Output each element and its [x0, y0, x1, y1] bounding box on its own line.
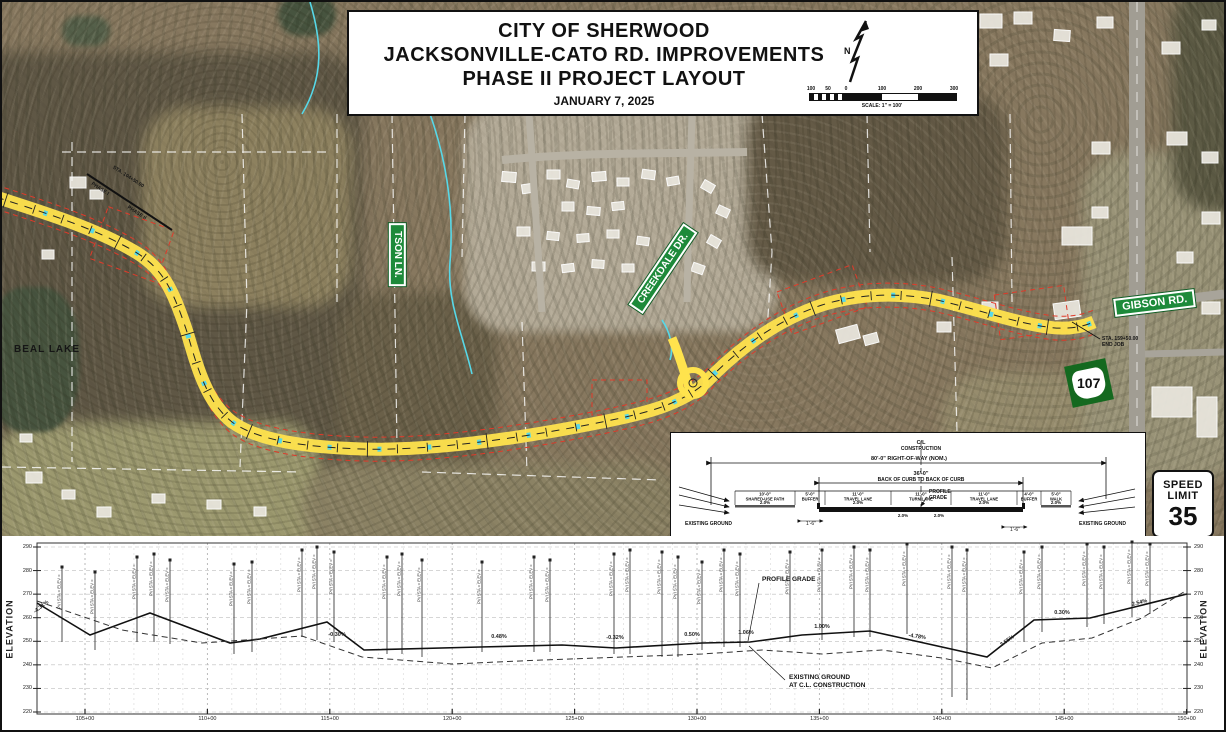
svg-text:N: N — [844, 46, 851, 56]
svg-text:BUFFER: BUFFER — [1021, 497, 1038, 502]
svg-text:PVI STA = ELEV =: PVI STA = ELEV = — [417, 567, 422, 602]
svg-text:PVI STA = ELEV =: PVI STA = ELEV = — [90, 579, 95, 614]
tson-ln-sign: TSON LN. — [389, 223, 406, 286]
existing-ground-line — [37, 590, 1187, 668]
svg-text:PVI STA = ELEV =: PVI STA = ELEV = — [962, 557, 967, 592]
elevation-profile-panel: PVI STA = ELEV =PVI STA = ELEV =PVI STA … — [2, 536, 1224, 730]
speed-value: 35 — [1169, 503, 1198, 529]
svg-text:1'-6": 1'-6" — [1010, 527, 1020, 533]
svg-text:PVI STA = ELEV =: PVI STA = ELEV = — [947, 554, 952, 589]
plan-sheet: BEAL LAKE PHASE I STA. 104+50.00 PHASE I… — [0, 0, 1226, 732]
svg-text:2.0%: 2.0% — [1051, 500, 1061, 505]
svg-text:PVI STA = ELEV =: PVI STA = ELEV = — [329, 559, 334, 594]
subdivision-road — [502, 152, 747, 160]
profile-grade-line — [37, 594, 1187, 657]
svg-text:PVI STA = ELEV =: PVI STA = ELEV = — [697, 569, 702, 604]
svg-text:PVI STA = ELEV =: PVI STA = ELEV = — [673, 564, 678, 599]
svg-text:1.00%: 1.00% — [814, 624, 830, 630]
svg-text:2.0%: 2.0% — [898, 513, 908, 518]
subdivision-road — [529, 114, 542, 312]
svg-text:PVI STA = ELEV =: PVI STA = ELEV = — [229, 571, 234, 606]
scale-label: SCALE: 1" = 100' — [809, 103, 955, 109]
svg-text:PVI STA = ELEV =: PVI STA = ELEV = — [397, 561, 402, 596]
north-arrow-icon: N — [836, 20, 882, 84]
svg-text:-4.31%: -4.31% — [33, 599, 51, 615]
svg-text:-0.32%: -0.32% — [606, 635, 624, 641]
svg-text:80'-0" RIGHT-OF-WAY (NOM.): 80'-0" RIGHT-OF-WAY (NOM.) — [871, 456, 947, 462]
shield-number: 107 — [1077, 375, 1100, 391]
side-road — [1145, 352, 1224, 354]
svg-text:0.50%: 0.50% — [684, 632, 700, 638]
svg-text:GRADE: GRADE — [929, 495, 948, 501]
station-ticks — [3, 192, 1078, 457]
svg-text:PVI STA = ELEV =: PVI STA = ELEV = — [297, 557, 302, 592]
svg-text:0.30%: 0.30% — [1054, 610, 1070, 616]
svg-text:PVI STA = ELEV =: PVI STA = ELEV = — [902, 551, 907, 586]
svg-text:PVI STA = ELEV =: PVI STA = ELEV = — [529, 564, 534, 599]
svg-text:CONSTRUCTION: CONSTRUCTION — [901, 446, 942, 452]
svg-text:PVI STA = ELEV =: PVI STA = ELEV = — [57, 574, 62, 609]
svg-text:PVI STA = ELEV =: PVI STA = ELEV = — [849, 554, 854, 589]
svg-text:PVI STA = ELEV =: PVI STA = ELEV = — [719, 557, 724, 592]
svg-text:BUFFER: BUFFER — [802, 497, 819, 502]
svg-text:EXISTING GROUND: EXISTING GROUND — [1079, 521, 1126, 527]
svg-text:PVI STA = ELEV =: PVI STA = ELEV = — [609, 561, 614, 596]
svg-text:PVI STA = ELEV =: PVI STA = ELEV = — [132, 564, 137, 599]
svg-text:1'-6": 1'-6" — [806, 521, 816, 527]
svg-text:PVI STA = ELEV =: PVI STA = ELEV = — [312, 554, 317, 589]
scale-bar: 100 50 0 100 200 300 SCALE: 1" = 100' — [809, 86, 959, 112]
profile-grade-label: PROFILE GRADE — [762, 576, 815, 583]
svg-text:2.0%: 2.0% — [760, 500, 770, 505]
typical-section-panel: C/L CONSTRUCTION 80'-0" RIGHT-OF-WAY (NO… — [670, 432, 1146, 542]
title-date: JANUARY 7, 2025 — [369, 94, 839, 108]
title-line2: JACKSONVILLE-CATO RD. IMPROVEMENTS — [369, 43, 839, 67]
svg-text:-0.30%: -0.30% — [328, 632, 346, 638]
existing-ground-label: EXISTING GROUND AT C.L. CONSTRUCTION — [789, 674, 865, 690]
speed-word: SPEED — [1163, 480, 1203, 491]
subdivision-road — [687, 114, 692, 302]
svg-text:PVI STA = ELEV =: PVI STA = ELEV = — [477, 569, 482, 604]
svg-text:0.48%: 0.48% — [491, 634, 507, 640]
svg-text:PVI STA = ELEV =: PVI STA = ELEV = — [1127, 549, 1132, 584]
typical-section-drawing: C/L CONSTRUCTION 80'-0" RIGHT-OF-WAY (NO… — [671, 433, 1143, 539]
svg-text:PVI STA = ELEV =: PVI STA = ELEV = — [625, 557, 630, 592]
title-line1: CITY OF SHERWOOD — [369, 19, 839, 43]
svg-text:PVI STA = ELEV =: PVI STA = ELEV = — [247, 569, 252, 604]
svg-text:PVI STA = ELEV =: PVI STA = ELEV = — [657, 559, 662, 594]
speed-limit-sign: SPEED LIMIT 35 — [1152, 470, 1214, 538]
elevation-axis-right: ELEVATION — [1199, 599, 1209, 658]
svg-text:1.06%: 1.06% — [738, 630, 754, 636]
svg-text:PVI STA = ELEV =: PVI STA = ELEV = — [165, 567, 170, 602]
end-job-label: STA. 159+50.00END JOB — [1102, 336, 1138, 348]
title-text: CITY OF SHERWOOD JACKSONVILLE-CATO RD. I… — [369, 19, 839, 108]
svg-text:PVI STA = ELEV =: PVI STA = ELEV = — [149, 561, 154, 596]
scale-bar-graphic — [809, 93, 957, 101]
limit-word: LIMIT — [1167, 491, 1198, 502]
title-line3: PHASE II PROJECT LAYOUT — [369, 67, 839, 91]
svg-text:PVI STA = ELEV =: PVI STA = ELEV = — [735, 561, 740, 596]
svg-text:BACK OF CURB TO BACK OF CURB: BACK OF CURB TO BACK OF CURB — [878, 477, 965, 483]
svg-text:PVI STA = ELEV =: PVI STA = ELEV = — [382, 564, 387, 599]
svg-text:PVI STA = ELEV =: PVI STA = ELEV = — [817, 557, 822, 592]
svg-text:2.0%: 2.0% — [853, 500, 863, 505]
svg-text:PVI STA = ELEV =: PVI STA = ELEV = — [545, 567, 550, 602]
svg-text:PVI STA = ELEV =: PVI STA = ELEV = — [1099, 554, 1104, 589]
title-block: CITY OF SHERWOOD JACKSONVILLE-CATO RD. I… — [347, 10, 979, 116]
svg-text:PVI STA = ELEV =: PVI STA = ELEV = — [1145, 551, 1150, 586]
svg-text:EXISTING GROUND: EXISTING GROUND — [685, 521, 732, 527]
profile-chart: PVI STA = ELEV =PVI STA = ELEV =PVI STA … — [2, 536, 1224, 730]
svg-text:PVI STA = ELEV =: PVI STA = ELEV = — [1082, 551, 1087, 586]
elevation-axis-left: ELEVATION — [5, 599, 15, 658]
lake-label: BEAL LAKE — [14, 344, 80, 355]
svg-text:PVI STA = ELEV =: PVI STA = ELEV = — [865, 557, 870, 592]
svg-text:2.0%: 2.0% — [934, 513, 944, 518]
highway-107-shield: 107 — [1064, 358, 1114, 408]
svg-text:2.0%: 2.0% — [979, 500, 989, 505]
svg-text:PVI STA = ELEV =: PVI STA = ELEV = — [1037, 554, 1042, 589]
svg-text:PVI STA = ELEV =: PVI STA = ELEV = — [1019, 559, 1024, 594]
